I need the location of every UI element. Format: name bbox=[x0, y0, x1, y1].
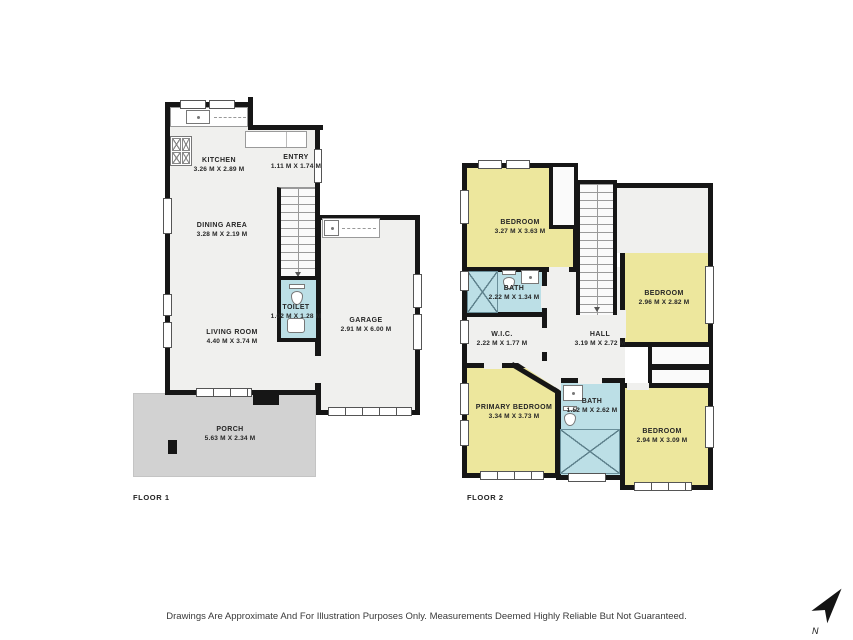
stairs-floor2 bbox=[576, 180, 617, 315]
room-dims: 1.02 M X 1.28 M bbox=[271, 313, 322, 320]
room-dims: 2.91 M X 6.00 M bbox=[341, 326, 392, 333]
stairs-floor1 bbox=[277, 187, 315, 280]
shower-icon bbox=[560, 429, 620, 474]
window bbox=[180, 100, 206, 109]
stairs-divider bbox=[298, 188, 299, 280]
room-name: LIVING ROOM bbox=[206, 329, 257, 336]
room-dims: 2.94 M X 3.09 M bbox=[637, 437, 688, 444]
window bbox=[163, 322, 172, 348]
room-name: W.I.C. bbox=[477, 331, 528, 338]
entry-notch bbox=[248, 97, 323, 130]
room-label-bedroom-tl: BEDROOM 3.27 M X 3.63 M bbox=[495, 219, 546, 235]
window bbox=[460, 271, 469, 291]
entry-closet bbox=[245, 131, 307, 148]
room-label-wic: W.I.C. 2.22 M X 1.77 M bbox=[477, 331, 528, 347]
room-name: BEDROOM bbox=[495, 219, 546, 226]
porch-step bbox=[253, 395, 279, 405]
room-dims: 3.26 M X 2.89 M bbox=[194, 166, 245, 173]
garage-door bbox=[328, 407, 412, 416]
window bbox=[568, 473, 606, 482]
floorplan-canvas: KITCHEN 3.26 M X 2.89 M ENTRY 1.11 M X 1… bbox=[0, 0, 853, 640]
window bbox=[163, 198, 172, 234]
room-dims: 3.28 M X 2.19 M bbox=[197, 231, 248, 238]
room-name: BEDROOM bbox=[637, 428, 688, 435]
closet bbox=[648, 366, 713, 387]
door-opening bbox=[627, 383, 649, 390]
room-name: GARAGE bbox=[341, 317, 392, 324]
room-label-hall: HALL 3.19 M X 2.72 M bbox=[575, 331, 626, 347]
burner-icon bbox=[182, 152, 191, 165]
door-opening bbox=[578, 377, 602, 384]
stairs-direction-icon bbox=[594, 307, 600, 312]
room-dims: 3.19 M X 2.72 M bbox=[575, 340, 626, 347]
sink-drain-icon bbox=[197, 116, 200, 119]
room-name: KITCHEN bbox=[194, 157, 245, 164]
room-dims: 2.96 M X 2.82 M bbox=[639, 299, 690, 306]
room-label-toilet: TOILET 1.02 M X 1.28 M bbox=[271, 304, 322, 320]
kitchen-sink-icon bbox=[186, 110, 210, 124]
garage-counter-dash bbox=[342, 228, 376, 229]
window bbox=[460, 420, 469, 446]
closet-divider bbox=[286, 132, 287, 147]
room-label-entry: ENTRY 1.11 M X 1.74 M bbox=[271, 154, 321, 170]
toilet-tank-icon bbox=[289, 284, 305, 289]
window bbox=[705, 406, 714, 448]
window bbox=[705, 266, 714, 324]
window bbox=[460, 190, 469, 224]
room-name: PORCH bbox=[205, 426, 256, 433]
door-opening bbox=[541, 286, 548, 308]
room-label-bedroom-br: BEDROOM 2.94 M X 3.09 M bbox=[637, 428, 688, 444]
room-label-kitchen: KITCHEN 3.26 M X 2.89 M bbox=[194, 157, 245, 173]
room-label-bath-bottom: BATH 1.52 M X 2.62 M bbox=[567, 398, 618, 414]
bath-sink-icon bbox=[521, 270, 539, 284]
room-dims: 5.63 M X 2.34 M bbox=[205, 435, 256, 442]
toilet-sink-icon bbox=[287, 318, 305, 333]
window bbox=[460, 320, 469, 344]
closet bbox=[549, 163, 578, 229]
room-dims: 3.27 M X 3.63 M bbox=[495, 228, 546, 235]
window bbox=[480, 471, 544, 480]
door-opening bbox=[541, 328, 548, 352]
door-opening bbox=[549, 267, 569, 273]
toilet-tank-icon bbox=[502, 270, 516, 275]
door-opening bbox=[314, 356, 322, 383]
room-dims: 3.34 M X 3.73 M bbox=[476, 413, 552, 420]
room-garage bbox=[316, 215, 420, 415]
window bbox=[209, 100, 235, 109]
kitchen-counter-dash bbox=[214, 117, 246, 118]
room-label-porch: PORCH 5.63 M X 2.34 M bbox=[205, 426, 256, 442]
room-label-living: LIVING ROOM 4.40 M X 3.74 M bbox=[206, 329, 257, 345]
room-label-bath-top: BATH 2.22 M X 1.34 M bbox=[489, 285, 540, 301]
compass-north-icon: N bbox=[806, 580, 850, 638]
patio-door bbox=[196, 388, 252, 397]
room-dims: 1.52 M X 2.62 M bbox=[567, 407, 618, 414]
room-dims: 1.11 M X 1.74 M bbox=[271, 163, 321, 170]
room-name: PRIMARY BEDROOM bbox=[476, 404, 552, 411]
window bbox=[413, 314, 422, 350]
sink-drain-icon bbox=[331, 227, 334, 230]
room-name: HALL bbox=[575, 331, 626, 338]
room-label-garage: GARAGE 2.91 M X 6.00 M bbox=[341, 317, 392, 333]
porch-post bbox=[168, 440, 177, 454]
floor2-label: FLOOR 2 bbox=[467, 493, 504, 502]
room-label-primary: PRIMARY BEDROOM 3.34 M X 3.73 M bbox=[476, 404, 552, 420]
burner-icon bbox=[172, 138, 181, 151]
compass-n-letter: N bbox=[812, 626, 819, 636]
stove-icon bbox=[170, 136, 192, 166]
room-name: BATH bbox=[567, 398, 618, 405]
room-label-bedroom-tr: BEDROOM 2.96 M X 2.82 M bbox=[639, 290, 690, 306]
sink-drain-icon bbox=[572, 392, 575, 395]
room-dims: 2.22 M X 1.77 M bbox=[477, 340, 528, 347]
window bbox=[413, 274, 422, 308]
room-name: BEDROOM bbox=[639, 290, 690, 297]
closet bbox=[648, 343, 713, 368]
room-label-dining: DINING AREA 3.28 M X 2.19 M bbox=[197, 222, 248, 238]
sink-drain-icon bbox=[529, 276, 532, 279]
disclaimer-text: Drawings Are Approximate And For Illustr… bbox=[0, 611, 853, 622]
door-opening bbox=[484, 362, 502, 369]
window bbox=[634, 482, 692, 491]
window bbox=[506, 160, 530, 169]
room-dims: 2.22 M X 1.34 M bbox=[489, 294, 540, 301]
burner-icon bbox=[172, 152, 181, 165]
burner-icon bbox=[182, 138, 191, 151]
garage-sink-icon bbox=[324, 220, 339, 236]
floor1-label: FLOOR 1 bbox=[133, 493, 170, 502]
room-name: TOILET bbox=[271, 304, 322, 311]
window bbox=[460, 383, 469, 415]
room-name: DINING AREA bbox=[197, 222, 248, 229]
landing-area bbox=[613, 183, 713, 253]
window bbox=[478, 160, 502, 169]
room-name: BATH bbox=[489, 285, 540, 292]
stairs-divider bbox=[597, 184, 598, 315]
room-name: ENTRY bbox=[271, 154, 321, 161]
window bbox=[163, 294, 172, 316]
room-dims: 4.40 M X 3.74 M bbox=[206, 338, 257, 345]
